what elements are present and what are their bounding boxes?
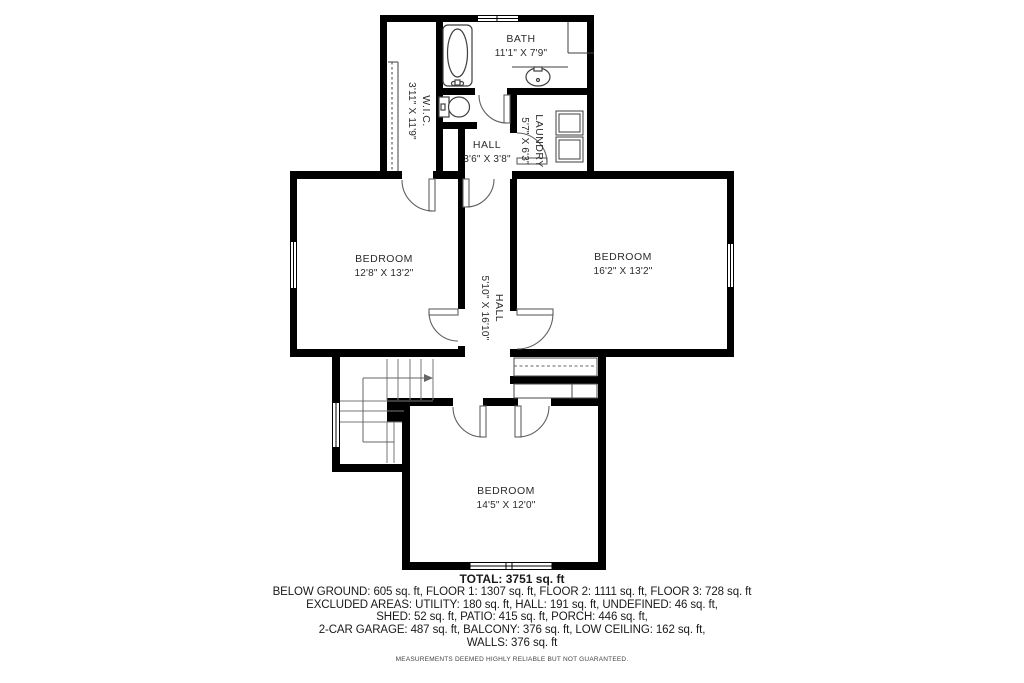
room-name: BEDROOM <box>593 251 652 263</box>
room-dims: 5'7" X 6'3" <box>519 114 530 168</box>
room-dims: 3'6" X 3'8" <box>463 154 511 165</box>
summary-line: WALLS: 376 sq. ft <box>0 637 1024 650</box>
room-dims: 5'10" X 16'10" <box>479 276 490 341</box>
summary-line: BELOW GROUND: 605 sq. ft, FLOOR 1: 1307 … <box>0 586 1024 599</box>
sink-icon <box>526 67 550 86</box>
room-label-bedroom-left: BEDROOM 12'8" X 13'2" <box>354 253 413 279</box>
room-label-bedroom-right: BEDROOM 16'2" X 13'2" <box>593 251 652 277</box>
closet-rod-lines <box>388 62 398 171</box>
room-name: BEDROOM <box>476 485 535 497</box>
room-label-wic: W.I.C. 3'11" X 11'9" <box>406 82 432 140</box>
room-name: W.I.C. <box>420 82 432 140</box>
disclaimer-text: MEASUREMENTS DEEMED HIGHLY RELIABLE BUT … <box>0 656 1024 663</box>
summary-line: 2-CAR GARAGE: 487 sq. ft, BALCONY: 376 s… <box>0 624 1024 637</box>
washer-dryer-icon <box>556 111 583 162</box>
toilet-icon <box>439 97 470 117</box>
room-name: BATH <box>495 33 548 45</box>
room-dims: 11'1" X 7'9" <box>495 48 548 59</box>
floor-plan-page: W.I.C. 3'11" X 11'9" BATH 11'1" X 7'9" H… <box>0 0 1024 683</box>
door-bedroom-bottom-1 <box>453 406 486 437</box>
room-name: BEDROOM <box>354 253 413 265</box>
door-bedroom-right <box>517 309 553 349</box>
room-label-hall-upper: HALL 3'6" X 3'8" <box>463 139 511 165</box>
area-summary: TOTAL: 3751 sq. ft BELOW GROUND: 605 sq.… <box>0 573 1024 663</box>
room-label-bath: BATH 11'1" X 7'9" <box>495 33 548 59</box>
door-hall <box>463 179 494 207</box>
room-label-laundry: LAUNDRY 5'7" X 6'3" <box>519 114 545 168</box>
door-bedroom-left <box>429 309 458 341</box>
door-bedroom-bottom-2 <box>515 406 549 437</box>
total-area: TOTAL: 3751 sq. ft <box>0 573 1024 586</box>
room-name: HALL <box>463 139 511 151</box>
room-name: LAUNDRY <box>533 114 545 168</box>
summary-line: EXCLUDED AREAS: UTILITY: 180 sq. ft, HAL… <box>0 599 1024 612</box>
staircase <box>340 359 433 463</box>
room-name: HALL <box>493 276 505 341</box>
bathtub-icon <box>443 25 472 86</box>
room-dims: 12'8" X 13'2" <box>354 268 413 279</box>
room-dims: 3'11" X 11'9" <box>406 82 417 140</box>
summary-line: SHED: 52 sq. ft, PATIO: 415 sq. ft, PORC… <box>0 611 1024 624</box>
door-bath <box>479 95 510 123</box>
room-dims: 16'2" X 13'2" <box>593 266 652 277</box>
room-label-hall-main: HALL 5'10" X 16'10" <box>479 276 505 341</box>
door-wic <box>402 179 435 211</box>
room-label-bedroom-bottom: BEDROOM 14'5" X 12'0" <box>476 485 535 511</box>
room-dims: 14'5" X 12'0" <box>476 500 535 511</box>
